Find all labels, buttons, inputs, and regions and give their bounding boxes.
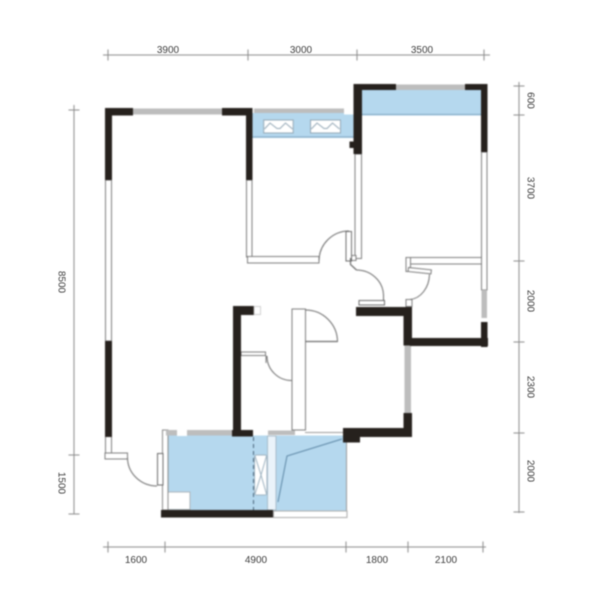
svg-text:1800: 1800 [366, 555, 389, 566]
svg-text:2000: 2000 [525, 460, 536, 483]
svg-text:3900: 3900 [157, 45, 180, 56]
svg-text:3000: 3000 [290, 45, 313, 56]
svg-text:2000: 2000 [525, 290, 536, 313]
svg-text:600: 600 [525, 92, 536, 109]
svg-text:2100: 2100 [435, 555, 458, 566]
svg-text:1500: 1500 [56, 472, 67, 495]
svg-text:2300: 2300 [525, 376, 536, 399]
svg-text:3500: 3500 [411, 45, 434, 56]
svg-text:8500: 8500 [56, 271, 67, 294]
svg-text:3700: 3700 [525, 177, 536, 200]
svg-text:4900: 4900 [245, 555, 268, 566]
svg-text:1600: 1600 [125, 555, 148, 566]
